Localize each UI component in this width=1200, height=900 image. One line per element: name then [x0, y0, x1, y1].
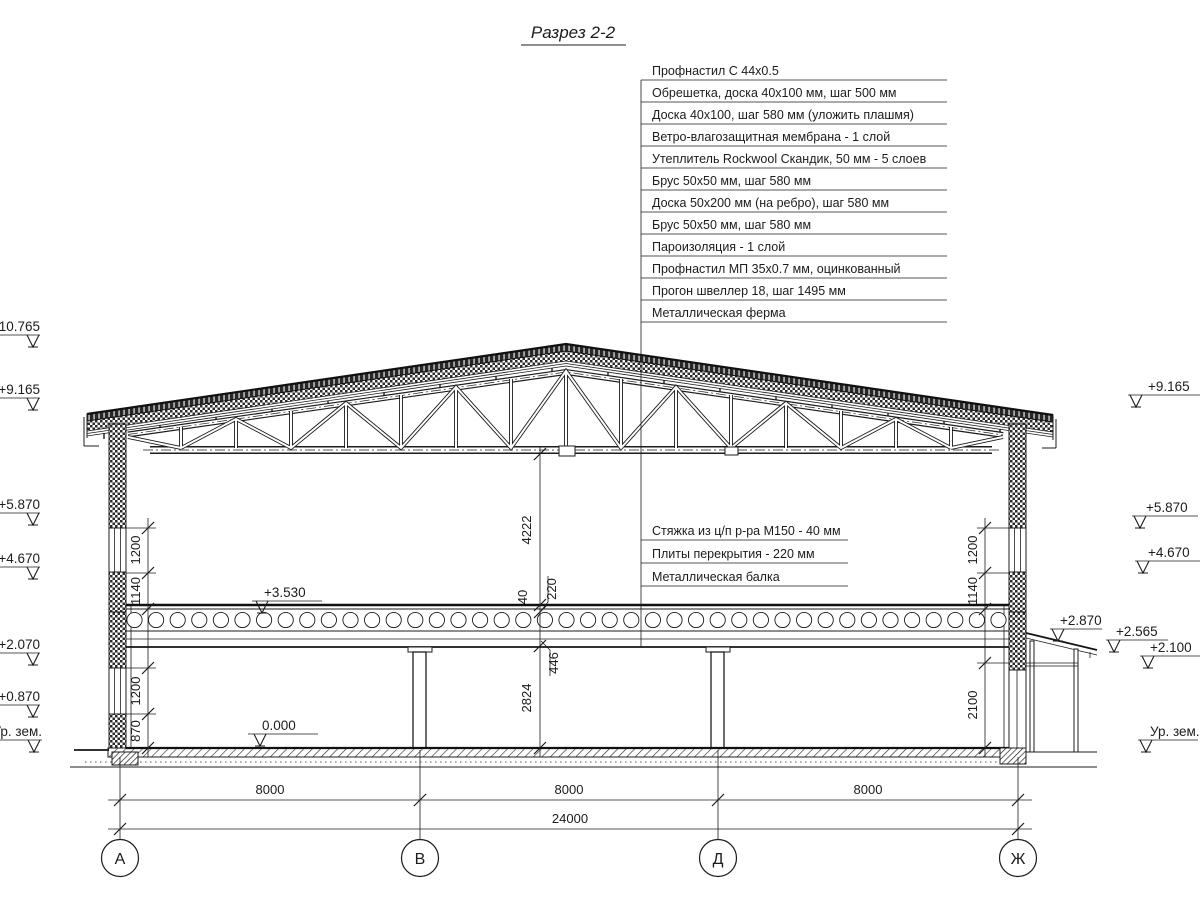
- elev-left-9165-value: +9.165: [0, 382, 40, 397]
- roof-callout-label: Доска 50х200 мм (на ребро), шаг 580 мм: [652, 196, 889, 210]
- roof-callout-label: Доска 40х100, шаг 580 мм (уложить плашмя…: [652, 108, 914, 122]
- roof-callout-label: Профнастил МП 35х0.7 мм, оцинкованный: [652, 262, 901, 276]
- column-b: [413, 652, 426, 748]
- column-capital: [408, 647, 432, 652]
- dim-center-40: 40: [515, 590, 530, 604]
- core-circle: [257, 612, 272, 627]
- core-circle: [797, 612, 812, 627]
- core-circle: [624, 612, 639, 627]
- floor-callout-label: Металлическая балка: [652, 570, 780, 584]
- core-circle: [321, 612, 336, 627]
- core-circle: [732, 612, 747, 627]
- roof-callout-label: Пароизоляция - 1 слой: [652, 240, 785, 254]
- core-circle: [926, 612, 941, 627]
- left-wall-panel-mid: [109, 572, 126, 612]
- core-circle: [494, 612, 509, 627]
- roof-callout-label: Ветро-влагозащитная мембрана - 1 слой: [652, 130, 890, 144]
- elev-floor1-value: 0.000: [262, 718, 296, 733]
- dim-left-870: 870: [128, 720, 143, 742]
- elev-left-4670-value: +4.670: [0, 551, 40, 566]
- core-circle: [840, 612, 855, 627]
- core-circle: [948, 612, 963, 627]
- left-window-upper: [109, 528, 126, 572]
- elev-right-5870-value: +5.870: [1146, 500, 1188, 515]
- hollow-core-circles: [127, 612, 1006, 627]
- lean-to-post-right: [1074, 649, 1078, 752]
- right-window-upper: [1009, 528, 1026, 572]
- core-circle: [753, 612, 768, 627]
- core-circle: [667, 612, 682, 627]
- axis-label-a: А: [115, 851, 126, 868]
- core-circle: [537, 612, 552, 627]
- axis-label-b: В: [415, 851, 426, 868]
- core-circle: [710, 612, 725, 627]
- elev-left-0870-value: +0.870: [0, 689, 40, 704]
- roof-callout-label: Брус 50х50 мм, шаг 580 мм: [652, 218, 811, 232]
- left-wall-panel-slab-zone: [109, 612, 126, 668]
- elev-left-5870-value: +5.870: [0, 497, 40, 512]
- foundation-right: [1000, 748, 1026, 764]
- core-circle: [861, 612, 876, 627]
- column-capital-2: [706, 647, 730, 652]
- roof-callout-label: Обрешетка, доска 40х100 мм, шаг 500 мм: [652, 86, 897, 100]
- elev-right-2565-value: +2.565: [1116, 624, 1158, 639]
- core-circle: [386, 612, 401, 627]
- left-wall-panel-base: [109, 714, 126, 748]
- dim-right-2100: 2100: [965, 691, 980, 720]
- core-circle: [602, 612, 617, 627]
- dim-center-4222: 4222: [519, 516, 534, 545]
- core-circle: [170, 612, 185, 627]
- axis-label-d: Д: [713, 851, 724, 868]
- dim-left-1140: 1140: [128, 577, 143, 605]
- dim-center-446: 446: [546, 652, 561, 674]
- roof-callout-label: Профнастил С 44х0.5: [652, 64, 779, 78]
- roof-callout-label: Прогон швеллер 18, шаг 1495 мм: [652, 284, 846, 298]
- core-circle: [408, 612, 423, 627]
- elev-right-2100-value: +2.100: [1150, 640, 1192, 655]
- core-circle: [645, 612, 660, 627]
- dim-span-2: 8000: [555, 782, 584, 797]
- column-d: [711, 652, 724, 748]
- dim-right-1140: 1140: [965, 577, 980, 605]
- floor-slab-hatch: [108, 748, 1026, 757]
- core-circle: [365, 612, 380, 627]
- left-wall-panel-upper: [109, 424, 126, 528]
- core-circle: [818, 612, 833, 627]
- elev-right-ground-value: Ур. зем.: [1150, 724, 1200, 739]
- roof-callout-label: Брус 50х50 мм, шаг 580 мм: [652, 174, 811, 188]
- lean-to-post-left: [1030, 641, 1034, 752]
- core-circle: [991, 612, 1006, 627]
- floor-callout-label: Стяжка из ц/п р-ра М150 - 40 мм: [652, 524, 841, 538]
- core-circle: [429, 612, 444, 627]
- dim-left-1200b: 1200: [128, 677, 143, 706]
- drawing-title: Разрез 2-2: [531, 23, 616, 42]
- elev-left-10765-value: +10.765: [0, 319, 40, 334]
- core-circle: [278, 612, 293, 627]
- axis-label-zh: Ж: [1011, 851, 1026, 868]
- elev-left-2070-value: +2.070: [0, 637, 40, 652]
- core-circle: [213, 612, 228, 627]
- core-circle: [969, 612, 984, 627]
- core-circle: [235, 612, 250, 627]
- drawing-sheet: Разрез 2-2: [0, 0, 1200, 900]
- core-circle: [516, 612, 531, 627]
- elev-right-9165-value: +9.165: [1148, 379, 1190, 394]
- bottom-chord-splice-plate-2: [725, 447, 738, 455]
- dim-center-220: 220: [544, 578, 559, 600]
- core-circle: [127, 612, 142, 627]
- left-window-lower: [109, 668, 126, 714]
- roof-callout-label: Металлическая ферма: [652, 306, 786, 320]
- dim-total: 24000: [552, 811, 588, 826]
- core-circle: [581, 612, 596, 627]
- elev-floor2-value: +3.530: [264, 585, 306, 600]
- core-circle: [905, 612, 920, 627]
- dim-span-1: 8000: [256, 782, 285, 797]
- core-circle: [775, 612, 790, 627]
- core-circle: [343, 612, 358, 627]
- core-circle: [559, 612, 574, 627]
- bottom-chord-splice-plate: [559, 446, 575, 456]
- dim-right-1200: 1200: [965, 536, 980, 565]
- elev-right-2870-value: +2.870: [1060, 613, 1102, 628]
- dim-center-2824: 2824: [519, 684, 534, 713]
- core-circle: [192, 612, 207, 627]
- core-circle: [689, 612, 704, 627]
- dim-left-1200a: 1200: [128, 536, 143, 565]
- core-circle: [451, 612, 466, 627]
- foundation-left: [112, 752, 138, 765]
- core-circle: [149, 612, 164, 627]
- section-drawing: Разрез 2-2: [0, 0, 1200, 900]
- right-wall-panel-slab-zone: [1009, 612, 1026, 670]
- core-circle: [473, 612, 488, 627]
- right-wall-panel-upper: [1009, 424, 1026, 528]
- floor-callout-label: Плиты перекрытия - 220 мм: [652, 547, 815, 561]
- elev-left-ground-value: Ур. зем.: [0, 724, 42, 739]
- right-wall-panel-mid: [1009, 572, 1026, 612]
- dim-span-3: 8000: [854, 782, 883, 797]
- core-circle: [883, 612, 898, 627]
- roof-callout-label: Утеплитель Rockwool Скандик, 50 мм - 5 с…: [652, 152, 927, 166]
- core-circle: [300, 612, 315, 627]
- elev-right-4670-value: +4.670: [1148, 545, 1190, 560]
